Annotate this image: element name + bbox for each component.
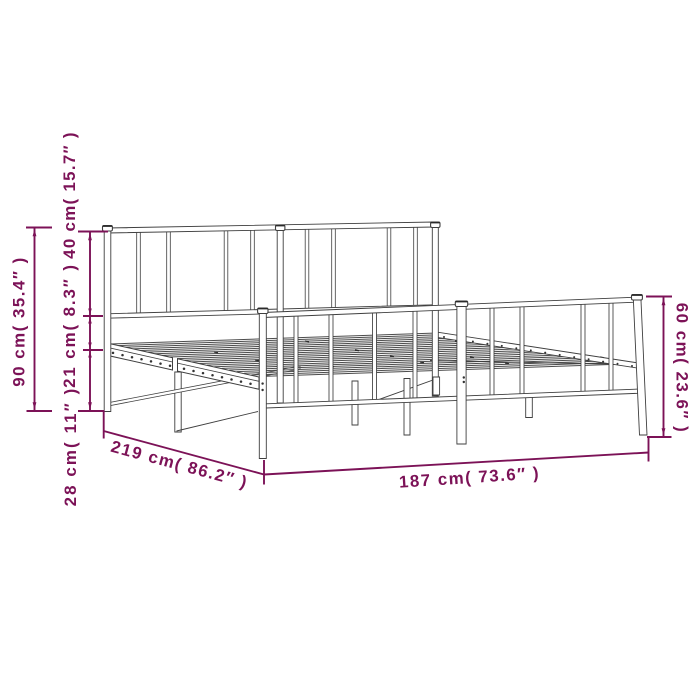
svg-text:90 cm( 35.4″ ): 90 cm( 35.4″ ) (10, 256, 29, 387)
svg-text:60 cm( 23.6″ ): 60 cm( 23.6″ ) (672, 303, 691, 434)
svg-text:40 cm( 15.7″ ): 40 cm( 15.7″ ) (60, 131, 79, 259)
svg-text:28 cm( 11″ ): 28 cm( 11″ ) (61, 387, 80, 507)
svg-text:21 cm( 8.3″ ): 21 cm( 8.3″ ) (60, 263, 79, 388)
